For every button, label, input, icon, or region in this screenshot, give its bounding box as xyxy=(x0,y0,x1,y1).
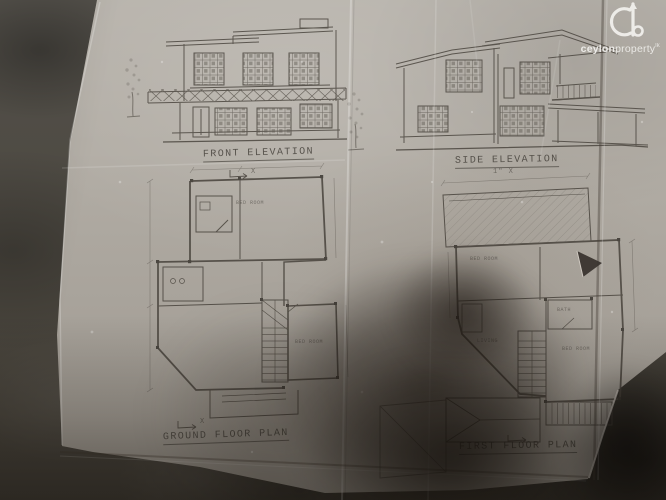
photo-of-blueprint: FRONT ELEVATION X SIDE ELEVATION 1" X GR… xyxy=(0,0,666,500)
front-elevation-section-mark: X xyxy=(251,168,256,176)
room-label: BED ROOM xyxy=(295,339,323,345)
watermark-suffix: lk xyxy=(655,43,660,49)
room-label: LIVING xyxy=(477,338,498,344)
ground-floor-plan-section-mark: X xyxy=(200,418,205,426)
side-elevation-title: SIDE ELEVATION xyxy=(455,154,559,169)
first-floor-plan-title: FIRST FLOOR PLAN xyxy=(459,440,578,455)
side-elevation-scale-note: 1" X xyxy=(493,168,514,176)
room-label: BED ROOM xyxy=(470,256,498,262)
watermark-brand2: property xyxy=(615,43,655,55)
watermark-logo: ceylonpropertylk xyxy=(578,2,664,47)
cb-monogram-icon xyxy=(578,2,664,42)
room-label: BATH xyxy=(557,307,571,313)
room-label: BED ROOM xyxy=(562,346,590,352)
room-label: BED ROOM xyxy=(236,200,264,206)
watermark-brand: ceylon xyxy=(581,43,615,55)
blueprint-sheet xyxy=(0,0,666,500)
